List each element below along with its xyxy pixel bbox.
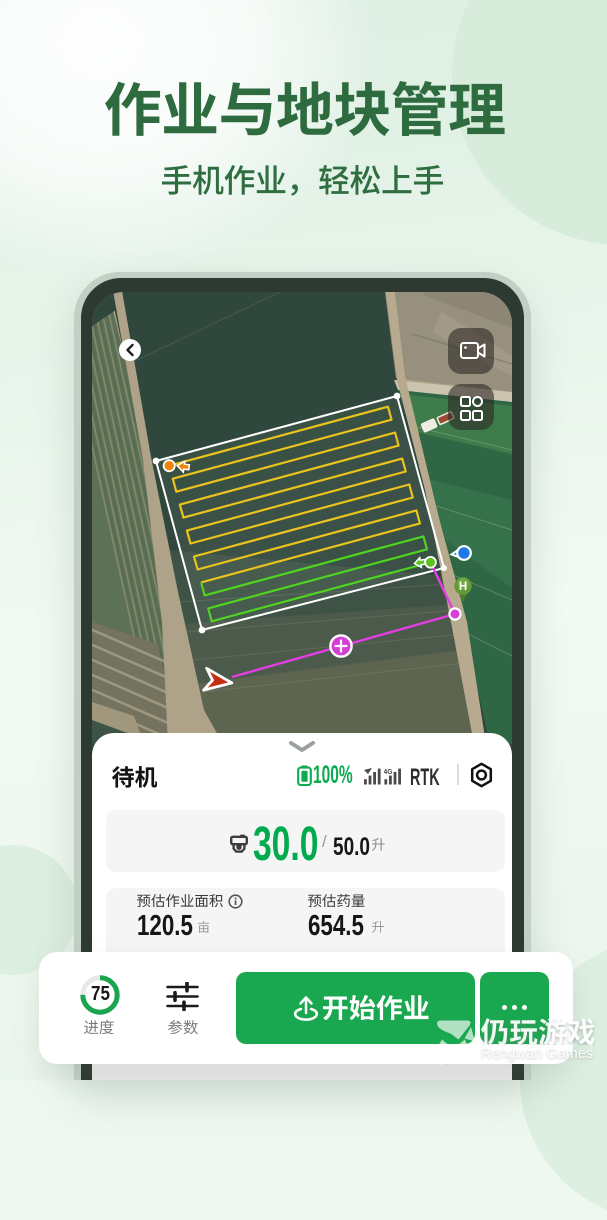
svg-text:4G: 4G [384, 767, 393, 776]
svg-text:H: H [459, 581, 467, 593]
